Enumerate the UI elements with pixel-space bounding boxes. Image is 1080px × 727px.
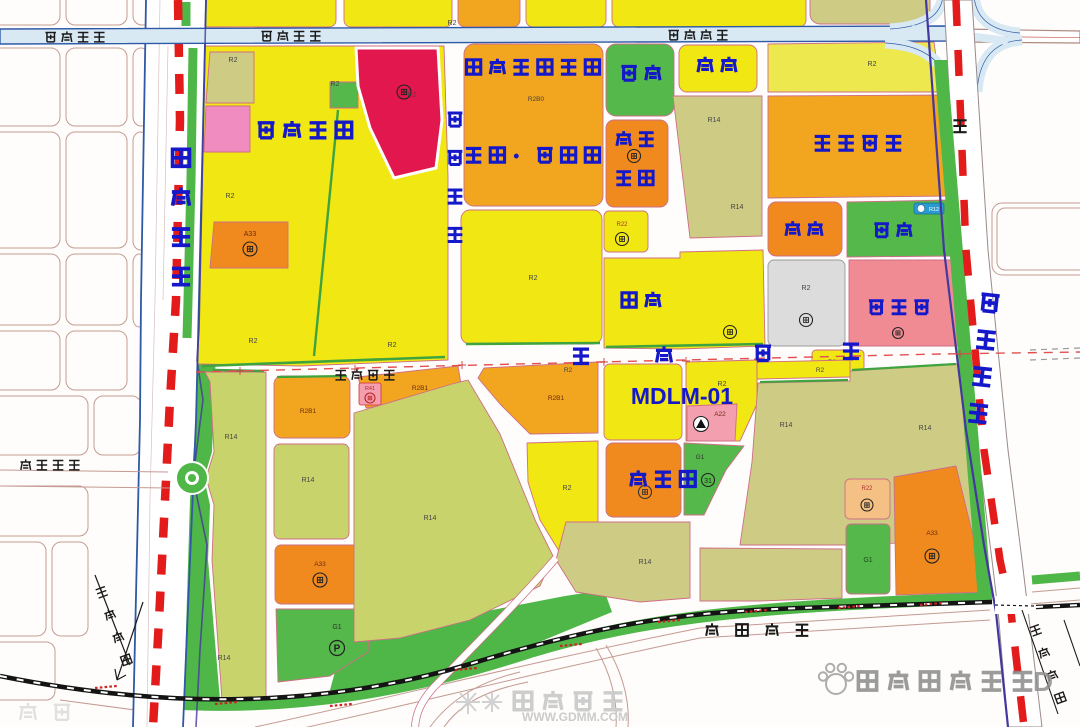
svg-text:R2: R2 <box>802 285 811 292</box>
svg-text:A33: A33 <box>314 561 326 568</box>
svg-text:R2: R2 <box>868 61 877 68</box>
svg-text:R14: R14 <box>708 117 721 124</box>
svg-text:R2: R2 <box>388 342 397 349</box>
svg-text:R22: R22 <box>861 486 873 492</box>
svg-text:R2: R2 <box>331 81 340 88</box>
svg-text:A33: A33 <box>244 231 257 238</box>
svg-text:R2: R2 <box>529 275 538 282</box>
svg-text:R2: R2 <box>816 367 825 374</box>
svg-text:R2B0: R2B0 <box>528 96 545 103</box>
svg-text:31: 31 <box>704 478 712 485</box>
svg-text:R2: R2 <box>448 20 457 27</box>
svg-text:R14: R14 <box>731 204 744 211</box>
svg-text:G1: G1 <box>863 557 872 564</box>
svg-text:R2: R2 <box>563 485 572 492</box>
svg-text:WWW.GDMM.COM: WWW.GDMM.COM <box>522 710 628 724</box>
svg-text:R2: R2 <box>564 367 573 374</box>
svg-text:R2B1: R2B1 <box>548 395 565 402</box>
svg-text:R41: R41 <box>365 386 375 392</box>
svg-text:A22: A22 <box>714 411 726 418</box>
svg-text:A33: A33 <box>926 530 938 537</box>
svg-text:G1: G1 <box>696 454 705 461</box>
svg-text:R22: R22 <box>616 222 628 228</box>
svg-text:R2B1: R2B1 <box>300 408 317 415</box>
svg-text:R2: R2 <box>408 92 417 99</box>
svg-text:R2: R2 <box>229 57 238 64</box>
svg-text:R14: R14 <box>639 559 652 566</box>
svg-text:R14: R14 <box>919 425 932 432</box>
svg-text:D: D <box>1033 666 1053 697</box>
svg-text:P: P <box>334 644 341 655</box>
svg-text:R14: R14 <box>424 515 437 522</box>
svg-text:R14: R14 <box>302 477 315 484</box>
svg-text:R12: R12 <box>929 207 939 213</box>
svg-text:R2B1: R2B1 <box>412 385 429 392</box>
svg-text:MDLM-01: MDLM-01 <box>631 383 733 409</box>
svg-text:R14: R14 <box>218 655 231 662</box>
svg-text:R14: R14 <box>225 434 238 441</box>
svg-text:G1: G1 <box>332 624 341 631</box>
svg-text:R2: R2 <box>226 193 235 200</box>
svg-text:R2: R2 <box>249 338 258 345</box>
svg-text:R14: R14 <box>780 422 793 429</box>
